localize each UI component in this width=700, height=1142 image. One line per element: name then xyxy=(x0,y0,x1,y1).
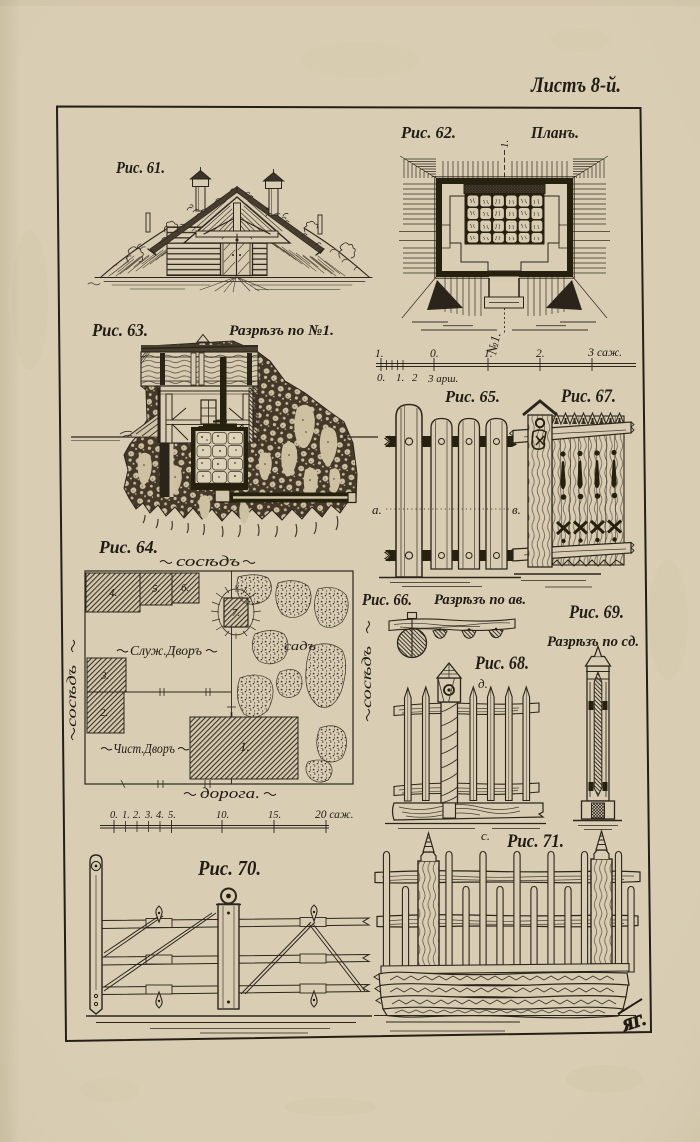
svg-text:а.: а. xyxy=(372,502,382,517)
svg-text:1.: 1. xyxy=(122,810,130,821)
svg-text:сосѣдъ: сосѣдъ xyxy=(176,554,240,570)
svg-text:сосѣдъ: сосѣдъ xyxy=(65,665,80,727)
svg-text:Планъ.: Планъ. xyxy=(530,123,579,142)
svg-text:Рис. 66.: Рис. 66. xyxy=(361,590,412,609)
svg-text:3.: 3. xyxy=(100,670,109,682)
svg-text:1.: 1. xyxy=(396,372,404,384)
svg-text:5.: 5. xyxy=(152,583,160,595)
svg-text:2: 2 xyxy=(412,372,418,384)
svg-text:Рис. 63.: Рис. 63. xyxy=(91,320,148,340)
svg-text:Рис. 70.: Рис. 70. xyxy=(197,856,261,880)
svg-text:1.: 1. xyxy=(240,739,250,754)
svg-text:5.: 5. xyxy=(168,810,176,821)
svg-text:Рис. 64.: Рис. 64. xyxy=(98,537,158,557)
svg-text:Разрѣзъ по сд.: Разрѣзъ по сд. xyxy=(547,634,639,650)
svg-text:с.: с. xyxy=(481,828,490,843)
svg-text:7.: 7. xyxy=(232,607,240,619)
svg-text:д.: д. xyxy=(478,676,488,691)
svg-text:Чист.Дворъ: Чист.Дворъ xyxy=(113,742,175,757)
svg-text:0.: 0. xyxy=(377,372,385,384)
svg-text:2.: 2. xyxy=(536,348,545,360)
svg-text:1.: 1. xyxy=(375,348,384,360)
svg-text:4.: 4. xyxy=(109,587,117,599)
svg-text:3 саж.: 3 саж. xyxy=(587,345,622,359)
svg-text:Рис. 67.: Рис. 67. xyxy=(560,386,616,407)
svg-text:10.: 10. xyxy=(216,810,229,821)
svg-text:1.: 1. xyxy=(499,140,511,148)
svg-text:Рис. 68.: Рис. 68. xyxy=(474,653,529,674)
svg-text:3.: 3. xyxy=(144,810,153,821)
svg-text:Служ.Дворъ: Служ.Дворъ xyxy=(130,644,202,659)
svg-text:в.: в. xyxy=(512,502,521,517)
svg-text:Рис. 62.: Рис. 62. xyxy=(400,123,456,142)
svg-text:Разрѣзъ по ав.: Разрѣзъ по ав. xyxy=(434,592,526,608)
svg-text:Разрѣзъ по №1.: Разрѣзъ по №1. xyxy=(229,323,334,339)
svg-text:Рис. 71.: Рис. 71. xyxy=(506,831,564,852)
svg-text:0.: 0. xyxy=(430,348,439,360)
svg-text:3 арш.: 3 арш. xyxy=(427,373,458,385)
svg-text:сосѣдъ: сосѣдъ xyxy=(360,646,375,708)
svg-text:15.: 15. xyxy=(268,810,281,821)
svg-text:2.: 2. xyxy=(100,707,108,719)
svg-text:20 саж.: 20 саж. xyxy=(315,809,354,821)
svg-text:дорога.: дорога. xyxy=(200,786,260,802)
svg-text:4.: 4. xyxy=(156,810,164,821)
svg-text:Листъ 8-й.: Листъ 8-й. xyxy=(530,72,621,97)
svg-text:Рис. 61.: Рис. 61. xyxy=(115,158,165,177)
svg-text:0.: 0. xyxy=(110,810,118,821)
svg-text:2.: 2. xyxy=(133,810,141,821)
svg-text:Рис. 65.: Рис. 65. xyxy=(444,387,500,406)
svg-text:6.: 6. xyxy=(181,582,189,594)
svg-text:Рис. 69.: Рис. 69. xyxy=(568,602,624,623)
svg-text:1.: 1. xyxy=(484,348,493,360)
